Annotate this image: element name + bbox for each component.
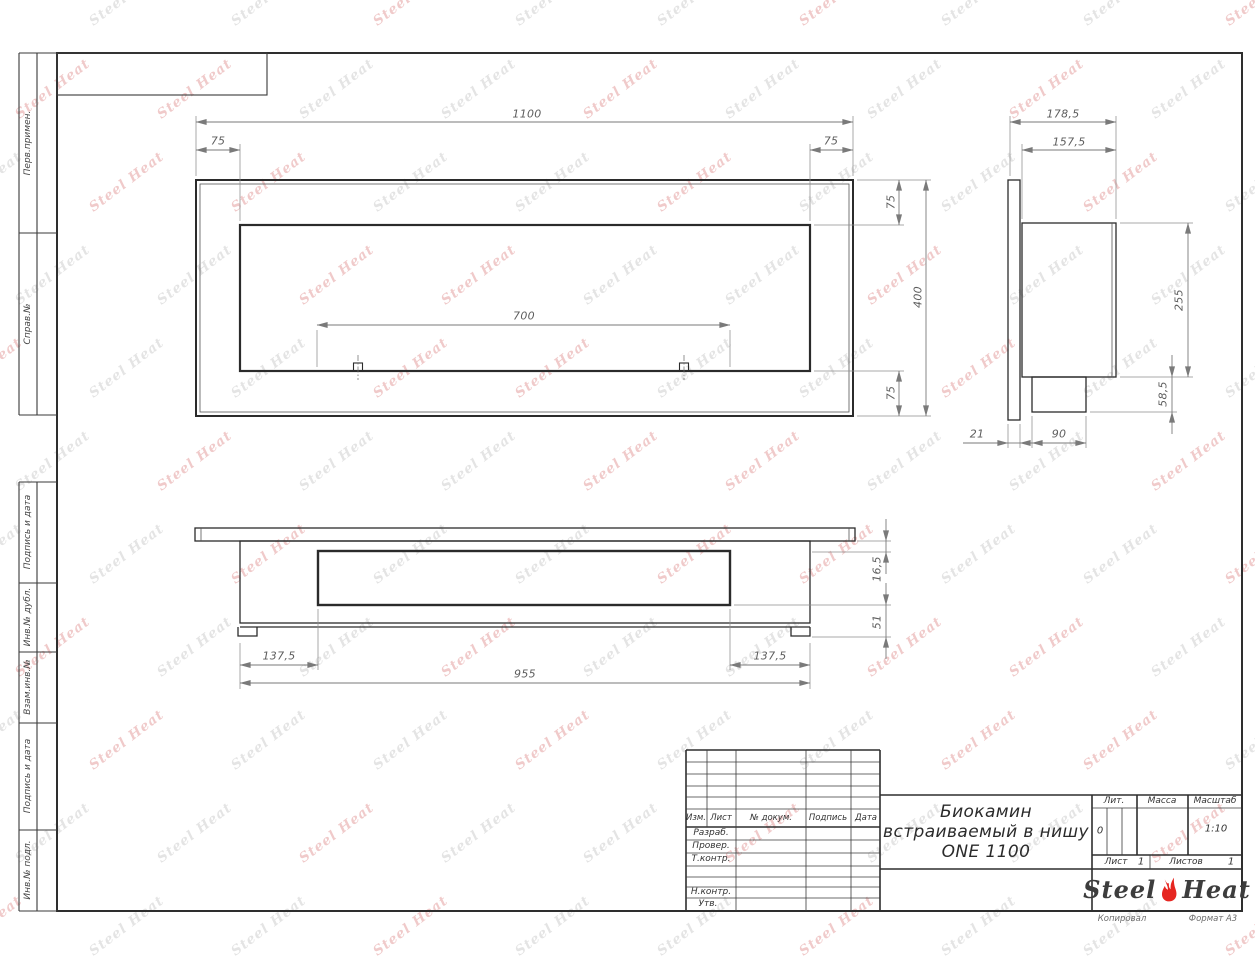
tb-masshtab-value: 1:10 [1205,824,1227,835]
footer-copied-note: Копировал [1098,914,1147,924]
dim-front-height: 400 [912,286,925,308]
tb-row-utv: Утв. [699,899,718,909]
tb-lit-label: Лит. [1104,796,1125,806]
margin-label-inv-dubl: Инв.№ дубл. [23,588,33,647]
dim-bottom-body-length: 955 [514,668,536,681]
dim-bottom-inset-right: 137,5 [754,650,787,663]
tb-list-value: 1 [1138,857,1144,868]
tb-row-razrab: Разраб. [693,828,728,838]
sheet-frame [57,53,1242,911]
tb-list-label: Лист [1105,857,1128,867]
tb-header-doc-no: № докум. [750,813,792,823]
dim-side-depth-body: 157,5 [1053,136,1086,149]
dim-side-box-height: 58,5 [1157,381,1170,407]
margin-label-vzam-inv: Взам.инв.№ [23,659,33,714]
dim-front-bottom-offset: 75 [885,386,898,401]
bottom-view [195,528,855,636]
dim-front-width: 1100 [512,108,541,121]
dim-bottom-recess: 16,5 [871,556,884,582]
logo-steel-text: Steel [1083,875,1156,904]
dim-front-right-offset: 75 [824,135,839,148]
dim-front-burner-length: 700 [513,310,535,323]
tb-row-nkontr: Н.контр. [691,887,731,897]
margin-label-inv-podl: Инв.№ подл. [23,840,33,899]
dim-front-top-offset: 75 [885,195,898,210]
front-view [196,180,853,416]
drawing-sheet: Steel HeatSteel HeatSteel HeatSteel Heat… [0,0,1255,970]
tb-listov-label: Листов [1169,857,1203,867]
footer-format-note: Формат А3 [1189,914,1237,924]
logo-heat-text: Heat [1182,875,1251,904]
side-view [1008,180,1116,420]
dim-side-depth-total: 178,5 [1047,108,1080,121]
extension-lines [196,116,1193,689]
tb-row-prover: Провер. [692,841,729,851]
margin-label-podpis-data-1: Подпись и дата [23,495,33,570]
dimension-lines [196,122,1188,683]
tb-massa-label: Масса [1148,796,1177,806]
flame-icon [1157,874,1181,904]
tb-header-podpis: Подпись [809,813,847,823]
dim-side-body-height: 255 [1173,289,1186,311]
dim-side-flange-thickness: 21 [970,428,985,441]
tb-lit-value: 0 [1097,826,1103,837]
margin-label-perv-primen: Перв.примен. [23,111,33,176]
doc-title-line1: Биокамин [940,802,1032,822]
tb-row-tkontr: Т.контр. [691,854,730,864]
steelheat-logo: Steel Heat [1083,874,1251,904]
margin-label-podpis-data-2: Подпись и дата [23,739,33,814]
tb-listov-value: 1 [1228,857,1234,868]
dim-front-left-offset: 75 [211,135,226,148]
doc-title-line2: встраиваемый в нишу [883,822,1089,842]
tb-header-data: Дата [855,813,877,823]
tb-header-list: Лист [710,813,732,823]
dim-side-box-width: 90 [1052,428,1067,441]
margin-label-sprav-no: Справ.№ [23,304,33,345]
dim-bottom-drop: 51 [871,615,884,630]
tb-masshtab-label: Масштаб [1194,796,1237,806]
tb-header-izm: Изм. [686,813,706,823]
doc-title-line3: ONE 1100 [942,842,1031,862]
dim-bottom-inset-left: 137,5 [263,650,296,663]
